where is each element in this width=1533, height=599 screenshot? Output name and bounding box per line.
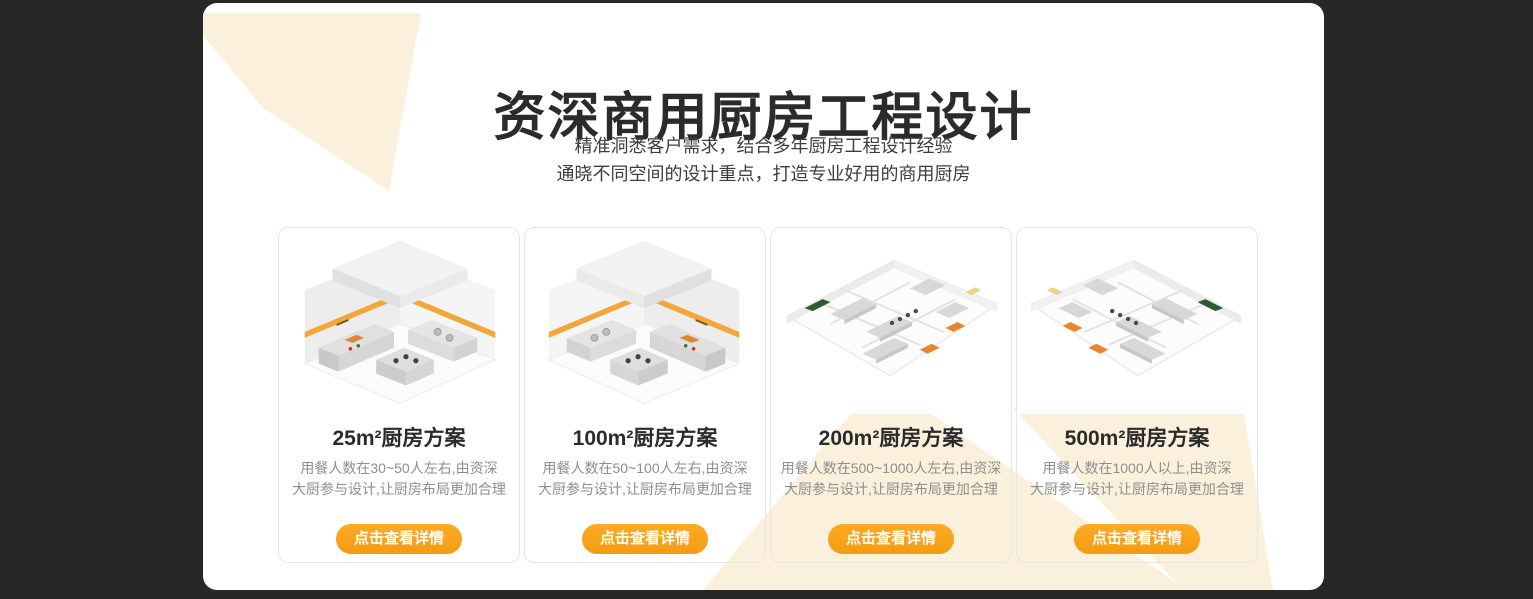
card-description-line-1: 用餐人数在500~1000人左右,由资深	[771, 458, 1011, 479]
kitchen-plan-card-500m2: 500m²厨房方案 用餐人数在1000人以上,由资深 大厨参与设计,让厨房布局更…	[1016, 227, 1258, 563]
card-description-line-1: 用餐人数在30~50人左右,由资深	[279, 458, 519, 479]
plan-card-list: 25m²厨房方案 用餐人数在30~50人左右,由资深 大厨参与设计,让厨房布局更…	[278, 227, 1258, 563]
subtitle-line-1: 精准洞悉客户需求，结合多年厨房工程设计经验	[203, 132, 1324, 160]
view-details-button[interactable]: 点击查看详情	[828, 524, 954, 554]
card-description: 用餐人数在500~1000人左右,由资深 大厨参与设计,让厨房布局更加合理	[771, 458, 1011, 500]
card-title: 25m²厨房方案	[279, 427, 519, 451]
kitchen-plan-card-25m2: 25m²厨房方案 用餐人数在30~50人左右,由资深 大厨参与设计,让厨房布局更…	[278, 227, 520, 563]
card-description-line-1: 用餐人数在1000人以上,由资深	[1017, 458, 1257, 479]
card-description-line-2: 大厨参与设计,让厨房布局更加合理	[1017, 479, 1257, 500]
kitchen-plan-card-200m2: 200m²厨房方案 用餐人数在500~1000人左右,由资深 大厨参与设计,让厨…	[770, 227, 1012, 563]
card-description: 用餐人数在30~50人左右,由资深 大厨参与设计,让厨房布局更加合理	[279, 458, 519, 500]
card-description-line-2: 大厨参与设计,让厨房布局更加合理	[279, 479, 519, 500]
card-title: 100m²厨房方案	[525, 427, 765, 451]
kitchen-render-image	[525, 228, 765, 414]
card-description-line-1: 用餐人数在50~100人左右,由资深	[525, 458, 765, 479]
card-title: 200m²厨房方案	[771, 427, 1011, 451]
card-title: 500m²厨房方案	[1017, 427, 1257, 451]
view-details-button[interactable]: 点击查看详情	[582, 524, 708, 554]
kitchen-plan-card-100m2: 100m²厨房方案 用餐人数在50~100人左右,由资深 大厨参与设计,让厨房布…	[524, 227, 766, 563]
content-panel: 资深商用厨房工程设计 精准洞悉客户需求，结合多年厨房工程设计经验 通晓不同空间的…	[203, 3, 1324, 590]
kitchen-render-image	[279, 228, 519, 414]
page-subtitle: 精准洞悉客户需求，结合多年厨房工程设计经验 通晓不同空间的设计重点，打造专业好用…	[203, 132, 1324, 188]
kitchen-render-image	[771, 228, 1011, 414]
subtitle-line-2: 通晓不同空间的设计重点，打造专业好用的商用厨房	[203, 160, 1324, 188]
card-description-line-2: 大厨参与设计,让厨房布局更加合理	[771, 479, 1011, 500]
kitchen-render-image	[1017, 228, 1257, 414]
card-description: 用餐人数在50~100人左右,由资深 大厨参与设计,让厨房布局更加合理	[525, 458, 765, 500]
view-details-button[interactable]: 点击查看详情	[1074, 524, 1200, 554]
card-description: 用餐人数在1000人以上,由资深 大厨参与设计,让厨房布局更加合理	[1017, 458, 1257, 500]
card-description-line-2: 大厨参与设计,让厨房布局更加合理	[525, 479, 765, 500]
view-details-button[interactable]: 点击查看详情	[336, 524, 462, 554]
